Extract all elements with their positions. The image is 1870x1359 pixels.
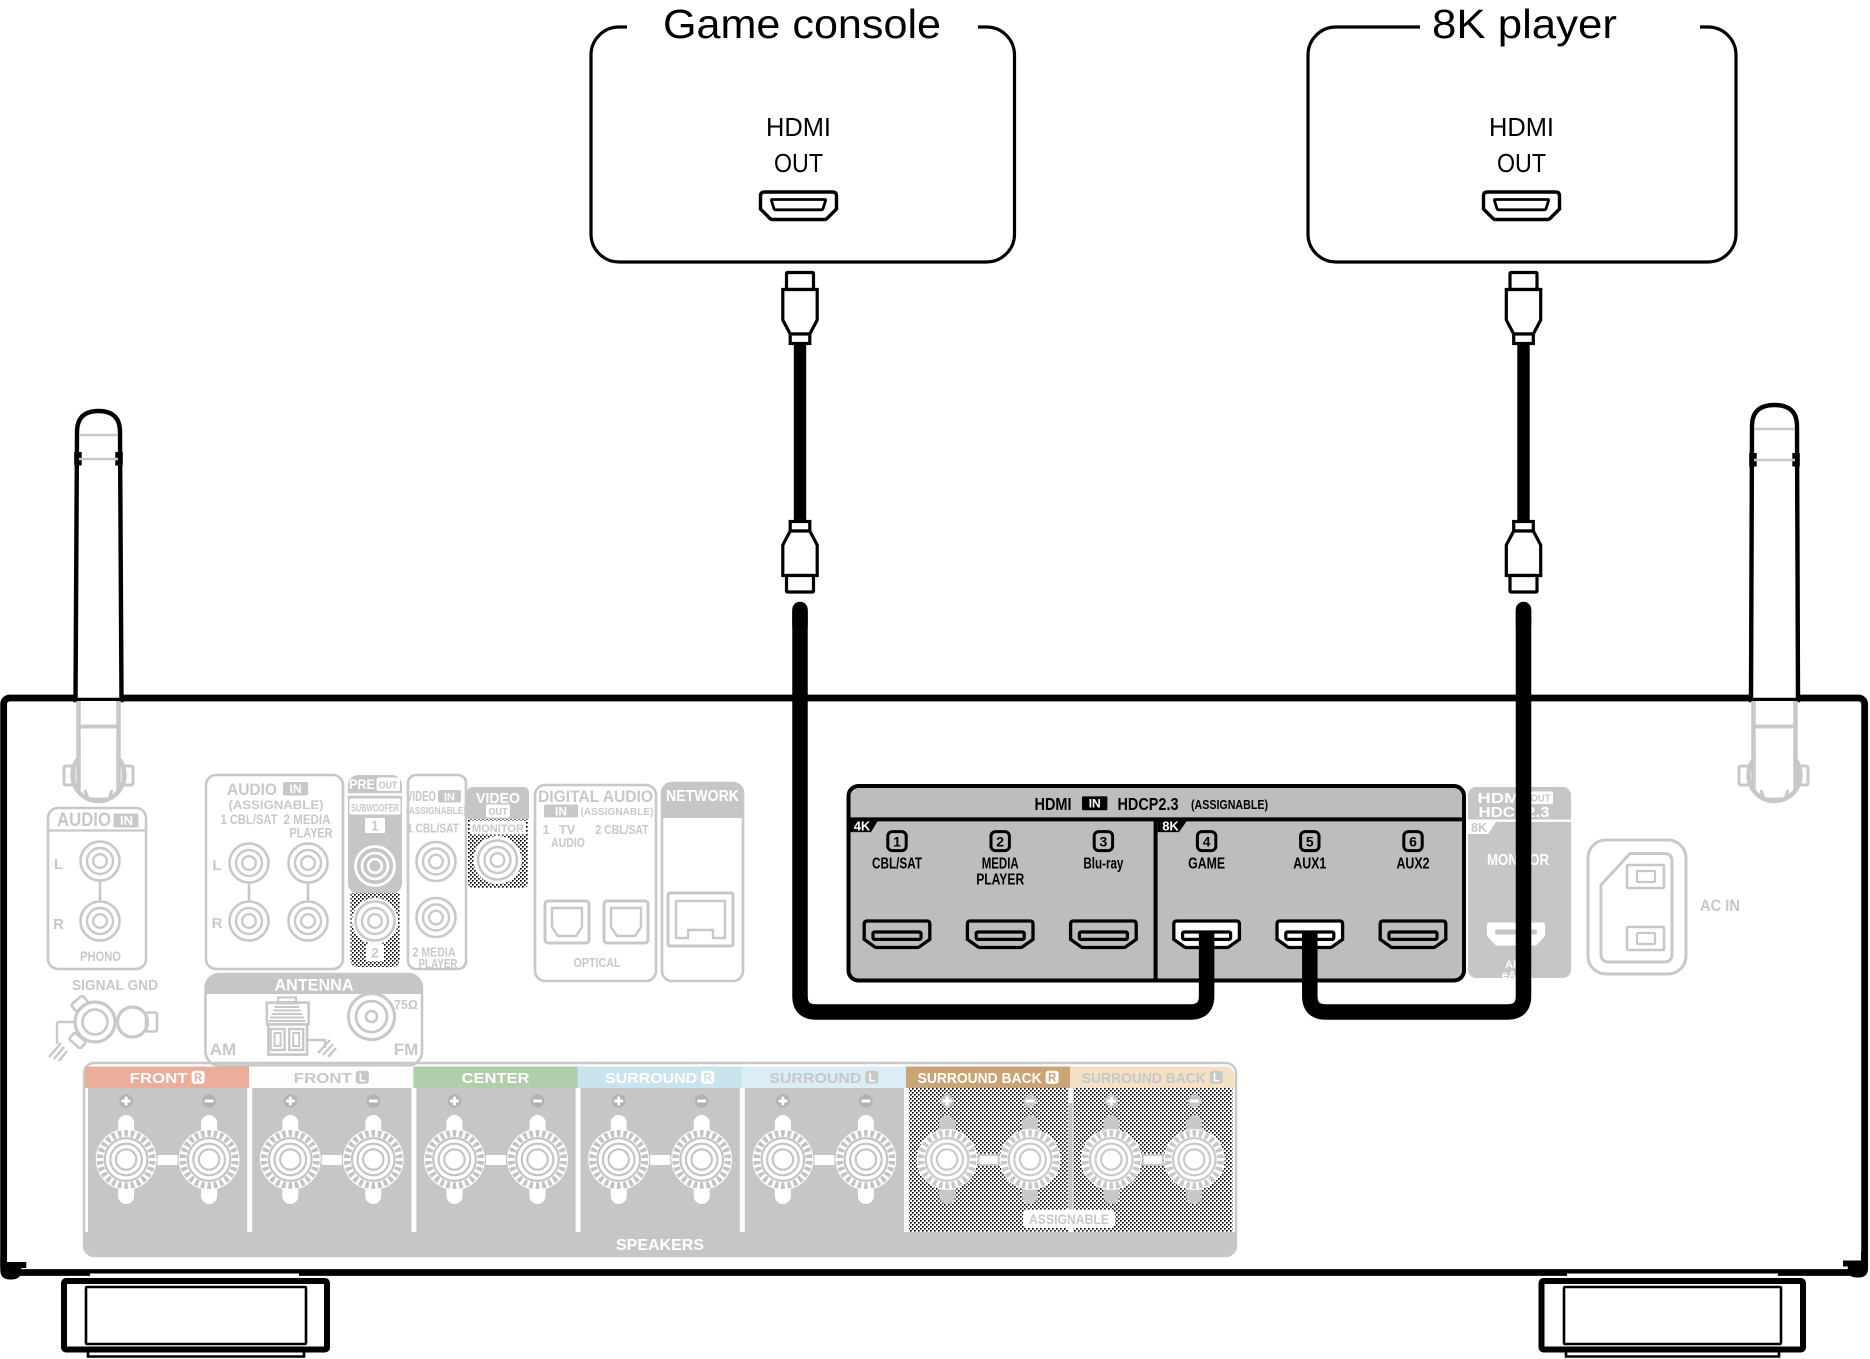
svg-text:L: L	[359, 1073, 366, 1085]
svg-text:SUBWOOFER: SUBWOOFER	[351, 803, 399, 815]
svg-text:AUDIO: AUDIO	[227, 780, 277, 799]
svg-text:75Ω: 75Ω	[394, 998, 418, 1012]
svg-text:SURROUND BACK: SURROUND BACK	[918, 1070, 1042, 1087]
svg-text:ASSIGNABLE: ASSIGNABLE	[1029, 1211, 1109, 1227]
svg-text:PLAYER: PLAYER	[290, 826, 333, 841]
svg-text:R: R	[212, 915, 223, 932]
svg-text:R: R	[53, 916, 64, 933]
svg-text:5: 5	[1306, 834, 1314, 850]
svg-text:MEDIA: MEDIA	[982, 856, 1019, 873]
svg-text:6: 6	[1409, 834, 1417, 850]
svg-text:Blu-ray: Blu-ray	[1083, 856, 1123, 873]
svg-text:1: 1	[371, 819, 379, 834]
svg-text:HDCP2.3: HDCP2.3	[1118, 794, 1179, 814]
svg-text:MONITOR: MONITOR	[472, 823, 524, 835]
svg-text:L: L	[54, 856, 63, 873]
svg-text:L: L	[1213, 1073, 1220, 1085]
svg-text:HDMI: HDMI	[1489, 112, 1554, 142]
svg-text:OUT: OUT	[774, 148, 823, 178]
svg-text:AUDIO: AUDIO	[57, 810, 111, 831]
svg-text:(ASSIGNABLE): (ASSIGNABLE)	[1191, 798, 1268, 812]
svg-text:IN: IN	[290, 782, 302, 796]
svg-text:CENTER: CENTER	[462, 1070, 530, 1087]
svg-text:SURROUND BACK: SURROUND BACK	[1082, 1070, 1206, 1087]
svg-text:8K player: 8K player	[1432, 1, 1617, 47]
svg-text:IN: IN	[555, 805, 567, 819]
svg-text:FRONT: FRONT	[294, 1070, 352, 1087]
svg-text:SURROUND: SURROUND	[605, 1070, 697, 1087]
svg-text:(ASSIGNABLE): (ASSIGNABLE)	[406, 805, 466, 817]
svg-text:HDCP2.3: HDCP2.3	[1479, 804, 1550, 821]
svg-text:VIDEO: VIDEO	[476, 790, 520, 807]
svg-text:IN: IN	[1089, 797, 1101, 811]
svg-text:PLAYER: PLAYER	[976, 872, 1024, 889]
svg-text:4: 4	[1203, 834, 1211, 850]
svg-text:2 CBL/SAT: 2 CBL/SAT	[596, 822, 649, 837]
svg-text:OUT: OUT	[379, 780, 398, 792]
svg-text:8K: 8K	[1162, 819, 1179, 834]
svg-text:GAME: GAME	[1188, 856, 1225, 873]
svg-text:DIGITAL AUDIO: DIGITAL AUDIO	[538, 788, 653, 806]
svg-text:IN: IN	[444, 792, 455, 804]
svg-text:OUT: OUT	[1497, 148, 1546, 178]
svg-text:OUT: OUT	[489, 806, 508, 818]
svg-text:AUX2: AUX2	[1397, 856, 1430, 873]
svg-text:FM: FM	[394, 1040, 419, 1059]
svg-text:HDMI: HDMI	[1035, 794, 1072, 814]
svg-text:1: 1	[542, 822, 549, 837]
svg-text:R: R	[194, 1073, 203, 1085]
svg-text:AC IN: AC IN	[1700, 896, 1740, 915]
svg-text:8K: 8K	[1471, 821, 1487, 835]
svg-text:FRONT: FRONT	[130, 1070, 188, 1087]
svg-text:SIGNAL GND: SIGNAL GND	[72, 977, 158, 994]
svg-text:(ASSIGNABLE): (ASSIGNABLE)	[581, 806, 654, 818]
svg-text:AM: AM	[210, 1040, 236, 1059]
svg-text:3: 3	[1100, 834, 1108, 850]
svg-text:HDMI: HDMI	[766, 112, 831, 142]
svg-text:OPTICAL: OPTICAL	[574, 955, 621, 970]
svg-text:Game console: Game console	[663, 1, 941, 47]
svg-text:SPEAKERS: SPEAKERS	[616, 1237, 704, 1254]
svg-text:1: 1	[893, 834, 901, 850]
svg-text:R: R	[704, 1073, 713, 1085]
svg-text:1 CBL/SAT: 1 CBL/SAT	[221, 812, 279, 827]
svg-text:L: L	[868, 1073, 875, 1085]
svg-text:PLAYER: PLAYER	[419, 956, 458, 971]
svg-text:PHONO: PHONO	[80, 948, 121, 964]
svg-text:4K: 4K	[854, 819, 871, 834]
svg-text:OUT: OUT	[1531, 793, 1552, 805]
svg-text:CBL/SAT: CBL/SAT	[872, 856, 922, 873]
svg-text:2: 2	[996, 834, 1004, 850]
svg-text:2: 2	[371, 946, 379, 961]
svg-text:ANTENNA: ANTENNA	[275, 976, 354, 995]
svg-text:AUX1: AUX1	[1293, 856, 1326, 873]
svg-text:1 CBL/SAT: 1 CBL/SAT	[407, 821, 459, 836]
svg-text:IN: IN	[120, 813, 133, 828]
svg-text:(ASSIGNABLE): (ASSIGNABLE)	[229, 800, 324, 812]
svg-text:AUDIO: AUDIO	[551, 835, 585, 850]
svg-text:SURROUND: SURROUND	[769, 1070, 861, 1087]
svg-text:R: R	[1048, 1073, 1057, 1085]
svg-text:VIDEO: VIDEO	[406, 788, 436, 805]
svg-text:PRE: PRE	[349, 777, 375, 792]
svg-text:L: L	[212, 857, 221, 874]
svg-text:NETWORK: NETWORK	[666, 788, 740, 805]
